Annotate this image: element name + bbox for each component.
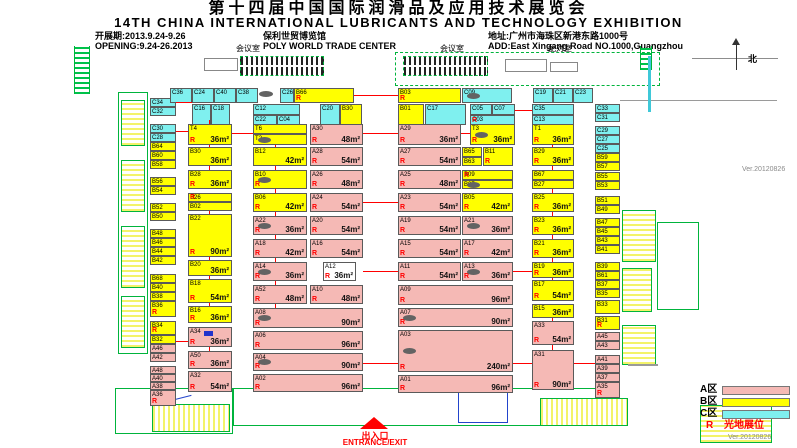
booth-id: B25 (534, 194, 545, 202)
booth-id: A06 (255, 332, 266, 340)
aisle-connector-line (515, 110, 532, 111)
booth-B30: B3036m² (188, 147, 232, 166)
booth-B29: B29R36m² (532, 147, 574, 166)
south-stair-left (152, 404, 230, 432)
exhibitor-logo-oval (403, 348, 416, 354)
booth-size: 36m² (491, 225, 510, 234)
booth-B61: B61 (595, 271, 620, 280)
booth-id: C19 (535, 89, 546, 97)
booth-size: 48m² (341, 179, 360, 188)
pairing-room-table-2 (550, 62, 578, 72)
booth-id: B56 (152, 178, 163, 186)
exhibitor-logo-oval (467, 223, 480, 229)
booth-B38: B38 (150, 292, 176, 301)
booth-A17: A17R42m² (462, 239, 513, 258)
meeting-room-label-1: 会议室 (236, 44, 260, 53)
booth-size: 54m² (552, 291, 571, 300)
legend-r-text: 光地展位 (724, 420, 764, 431)
booth-id: A12 (325, 263, 336, 271)
booth-id: C22 (255, 116, 266, 124)
aisle-connector-line (209, 303, 210, 306)
raw-space-marker: R (534, 250, 539, 258)
booth-size: 36m² (491, 271, 510, 280)
raw-space-marker: R (255, 384, 260, 392)
legend-zone-a-swatch (722, 386, 790, 395)
exhibitor-logo-blue (204, 331, 213, 336)
booth-id: C07 (494, 105, 505, 113)
booth-size: 36m² (552, 308, 571, 317)
booth-id: A16 (312, 240, 323, 248)
booth-B59: B59 (595, 153, 620, 162)
legend-r-label: R (706, 420, 713, 431)
booth-id: A32 (190, 372, 201, 380)
booth-B23: B23R36m² (532, 216, 574, 235)
raw-space-marker: R (400, 181, 405, 189)
booth-size: 54m² (439, 271, 458, 280)
booth-id: A01 (400, 376, 411, 384)
aisle-connector-line (513, 271, 532, 272)
aisle-connector-line (363, 363, 398, 364)
east-room-outline (657, 222, 699, 310)
booth-B15: B1536m² (532, 304, 574, 318)
booth-C29: C29 (595, 126, 620, 135)
booth-id: A33 (534, 322, 545, 330)
raw-space-marker: R (534, 227, 539, 235)
booth-A27: A27R54m² (398, 147, 461, 166)
booth-id: B22 (190, 215, 201, 223)
booth-B60: B60 (150, 151, 176, 160)
aisle-connector-line (176, 341, 188, 342)
booth-size: 48m² (341, 135, 360, 144)
booth-B42: B42 (150, 256, 176, 265)
booth-B51: B51 (595, 196, 620, 205)
raw-space-marker: R (312, 181, 317, 189)
raw-space-marker: R (400, 273, 405, 281)
booth-id: B12 (255, 148, 266, 156)
booth-size: 36m² (552, 135, 571, 144)
booth-B41: B41 (595, 245, 620, 254)
raw-space-marker: R (255, 250, 260, 258)
booth-id: A03 (400, 331, 411, 339)
booth-B36: B36R (150, 301, 176, 317)
booth-id: B50 (152, 213, 163, 221)
booth-id: A42 (152, 354, 163, 362)
booth-B09: B09R (462, 170, 513, 180)
booth-id: C40 (216, 89, 227, 97)
raw-space-marker: R (400, 250, 405, 258)
booth-A43: A43 (595, 341, 620, 350)
booth-id: B44 (152, 248, 163, 256)
booth-B32: B32 (150, 335, 176, 344)
booth-id: B58 (152, 161, 163, 169)
west-stair-1 (121, 100, 145, 146)
booth-id: B54 (152, 187, 163, 195)
raw-space-marker: R (190, 339, 195, 347)
legend-zone-c-label: C区 (700, 408, 717, 419)
aisle-connector-line (209, 347, 210, 351)
booth-C20: C20 (320, 104, 340, 125)
booth-B21: B21R36m² (532, 239, 574, 258)
raw-space-marker: R (597, 390, 602, 398)
raw-space-marker: R (312, 227, 317, 235)
booth-B40: B40 (150, 283, 176, 292)
booth-size: 54m² (439, 202, 458, 211)
aisle-connector-line (363, 271, 398, 272)
booth-size: 36m² (210, 266, 229, 275)
aisle-connector-line (461, 133, 470, 134)
booth-id: A41 (597, 356, 608, 364)
booth-B45: B45 (595, 227, 620, 236)
booth-size: 54m² (341, 202, 360, 211)
booth-size: 54m² (439, 156, 458, 165)
booth-size: 42m² (285, 248, 304, 257)
booth-size: 96m² (491, 295, 510, 304)
booth-A20: A20R54m² (310, 216, 363, 235)
raw-space-marker: R (312, 204, 317, 212)
raw-space-marker: R (400, 158, 405, 166)
booth-size: 36m² (493, 135, 512, 144)
booth-id: B65 (464, 148, 475, 156)
booth-size: 36m² (285, 271, 304, 280)
booth-id: B01 (400, 105, 411, 113)
aisle-connector-line (176, 131, 188, 132)
raw-space-marker: R (190, 194, 195, 202)
east-stair-2 (622, 268, 652, 312)
booth-size: 42m² (285, 156, 304, 165)
booth-A33: A33R54m² (532, 321, 574, 345)
booth-id: B67 (534, 171, 545, 179)
compass-needle (736, 44, 737, 70)
booth-size: 36m² (552, 248, 571, 257)
east-wall-line (620, 100, 777, 101)
booth-id: C30 (152, 125, 163, 133)
aisle-connector-line (354, 95, 398, 96)
booth-id: A28 (312, 148, 323, 156)
booth-size: 96m² (341, 382, 360, 391)
booth-id: C38 (238, 89, 249, 97)
booth-A04: A04R90m² (253, 353, 363, 371)
raw-space-marker: R (534, 158, 539, 166)
booth-A28: A28R54m² (310, 147, 363, 166)
east-stair-1 (622, 210, 656, 262)
entrance-label-en: ENTRANCE/EXIT (330, 438, 420, 447)
booth-B30: B30 (340, 104, 362, 125)
booth-id: A23 (400, 194, 411, 202)
booth-A32: A32R54m² (188, 371, 232, 392)
booth-size: 36m² (285, 225, 304, 234)
booth-B31: B31R (595, 316, 620, 330)
legend-zone-c-swatch (722, 410, 790, 419)
booth-A13: A13R36m² (462, 262, 513, 281)
booth-C07: C07 (492, 104, 515, 115)
raw-space-marker: R (312, 158, 317, 166)
booth-id: A46 (152, 345, 163, 353)
booth-id: C35 (534, 105, 545, 113)
raw-space-marker: R (296, 95, 301, 103)
meeting-room-2-seating (403, 56, 488, 76)
aisle-connector-line (275, 304, 276, 308)
raw-space-marker: R (534, 204, 539, 212)
booth-id: B52 (152, 204, 163, 212)
booth-id: B11 (485, 148, 495, 156)
booth-id: B55 (597, 173, 608, 181)
booth-id: C23 (575, 89, 586, 97)
booth-size: 42m² (491, 202, 510, 211)
booth-id: B53 (597, 182, 608, 190)
raw-space-marker: R (190, 181, 195, 189)
booth-size: 54m² (210, 382, 229, 391)
booth-C38: C38 (236, 88, 258, 103)
booth-B11: B11R (483, 147, 513, 166)
raw-space-marker: R (400, 227, 405, 235)
booth-id: A24 (312, 194, 323, 202)
booth-B39: B39 (595, 262, 620, 271)
booth-id: B17 (534, 281, 545, 289)
booth-id: A25 (400, 171, 411, 179)
raw-space-marker: R (152, 398, 157, 406)
booth-size: 96m² (341, 340, 360, 349)
booth-size: 36m² (210, 359, 229, 368)
floor-plan: 会议室 会议室 配对室 北 (0, 0, 797, 448)
booth-id: C12 (255, 105, 266, 113)
raw-space-marker: R (534, 137, 539, 145)
raw-space-marker: R (534, 337, 539, 345)
booth-B37: B37 (595, 280, 620, 289)
booth-id: B46 (152, 239, 163, 247)
booth-A10: A10R48m² (310, 285, 363, 304)
booth-id: C18 (213, 105, 224, 113)
booth-B10: B10R (253, 170, 307, 189)
booth-size: 96m² (491, 383, 510, 392)
booth-id: B39 (597, 263, 608, 271)
booth-C12: C12 (253, 104, 300, 115)
aisle-connector-line (209, 211, 210, 214)
booth-id: B61 (597, 272, 608, 280)
booth-size: 54m² (341, 248, 360, 257)
booth-size: 36m² (552, 202, 571, 211)
booth-id: B47 (597, 219, 608, 227)
booth-id: C04 (279, 116, 290, 124)
east-elevator-shaft (648, 56, 651, 112)
booth-C19: C19 (533, 88, 553, 103)
booth-A12: A12R36m² (323, 262, 356, 281)
booth-A01: A01R96m² (398, 375, 513, 393)
booth-T3: T3R36m² (470, 124, 515, 145)
booth-size: 36m² (210, 156, 229, 165)
booth-A16: A16R54m² (310, 239, 363, 258)
booth-B28: B28R36m² (188, 170, 232, 189)
booth-id: B06 (255, 194, 266, 202)
booth-C05: C05 (470, 104, 492, 115)
raw-space-marker: R (255, 320, 260, 328)
booth-A11: A11R54m² (398, 262, 461, 281)
booth-A23: A23R54m² (398, 193, 461, 212)
booth-B46: B46 (150, 238, 176, 247)
exhibitor-logo-oval (258, 269, 271, 275)
booth-B16: B16R36m² (188, 306, 232, 323)
booth-A21: A2136m² (462, 216, 513, 235)
booth-id: C24 (194, 89, 205, 97)
booth-id: B43 (597, 237, 608, 245)
booth-A15: A15R54m² (398, 239, 461, 258)
aisle-connector-line (275, 235, 276, 239)
booth-B01: B01 (398, 104, 424, 125)
booth-B33: B33 (595, 300, 620, 314)
raw-space-marker: R (152, 309, 157, 317)
north-label: 北 (748, 52, 757, 65)
booth-A34: A34R36m² (188, 327, 232, 347)
booth-size: 54m² (210, 293, 229, 302)
booth-A22: A22R36m² (253, 216, 307, 235)
aisle-connector-line (209, 120, 210, 124)
booth-id: C13 (534, 116, 545, 124)
booth-size: 240m² (487, 362, 510, 371)
booth-A37: A37 (595, 373, 620, 382)
booth-C24: C24 (192, 88, 214, 103)
exhibitor-logo-oval (258, 223, 271, 229)
raw-space-marker: R (464, 250, 469, 258)
booth-id: A39 (597, 365, 608, 373)
south-stair-right (540, 398, 628, 426)
booth-id: A02 (255, 375, 266, 383)
aisle-connector-line (552, 278, 553, 280)
aisle-connector-line (552, 318, 553, 321)
booth-T4: T4R36m² (188, 124, 232, 145)
booth-B43: B43 (595, 236, 620, 245)
booth-C09: C09 (462, 88, 512, 103)
booth-id: B59 (597, 154, 608, 162)
booth-T1: T1R36m² (532, 124, 574, 145)
booth-id: A34 (190, 328, 201, 336)
booth-B65: B65 (462, 147, 482, 157)
booth-C31: C31 (595, 113, 620, 122)
booth-A19: A19R54m² (398, 216, 461, 235)
raw-space-marker: R (312, 296, 317, 304)
exhibitor-logo-oval (467, 269, 480, 275)
booth-id: C27 (597, 136, 608, 144)
booth-id: A37 (597, 374, 608, 382)
booth-size: 90m² (341, 361, 360, 370)
booth-B58: B58 (150, 160, 176, 169)
booth-A24: A24R54m² (310, 193, 363, 212)
booth-A06: A06R96m² (253, 331, 363, 350)
west-stair-2 (121, 160, 145, 212)
booth-B53: B53 (595, 181, 620, 190)
booth-id: A29 (400, 125, 411, 133)
booth-A40: A40 (150, 374, 176, 382)
booth-A36: A36R (150, 390, 176, 406)
booth-T6: T6 (253, 124, 307, 134)
raw-space-marker: R (255, 204, 260, 212)
east-door-marker (628, 364, 658, 366)
version-label-bottom: Ver.20120826 (728, 434, 771, 442)
booth-size: 48m² (341, 294, 360, 303)
booth-id: B27 (534, 181, 545, 189)
booth-B66: B66R (294, 88, 354, 103)
booth-B34: B34R (150, 321, 176, 335)
booth-id: C36 (172, 89, 183, 97)
booth-A38: A38 (150, 382, 176, 390)
booth-C30: C30 (150, 124, 176, 133)
exhibitor-logo-oval (258, 137, 271, 143)
booth-id: A09 (400, 286, 411, 294)
booth-C23: C23 (573, 88, 593, 103)
legend-zone-b-swatch (722, 398, 790, 407)
booth-id: C28 (152, 134, 163, 142)
aisle-connector-line (363, 133, 398, 134)
booth-C36: C36 (170, 88, 192, 103)
booth-id: B51 (597, 197, 608, 205)
version-label-side: Ver.20120826 (742, 166, 785, 174)
booth-id: B33 (597, 301, 608, 309)
booth-C35: C35 (532, 104, 574, 115)
floor-plan-page: 第十四届中国国际润滑品及应用技术展览会 14TH CHINA INTERNATI… (0, 0, 797, 448)
raw-space-marker: R (400, 95, 405, 103)
booth-B57: B57 (595, 162, 620, 171)
booth-A07: A07R90m² (398, 308, 513, 327)
booth-id: B32 (152, 336, 163, 344)
south-blue-room (458, 390, 508, 423)
aisle-connector-line (209, 276, 210, 279)
booth-size: 90m² (210, 247, 229, 256)
booth-A48: A48 (150, 366, 176, 374)
exhibitor-logo-oval (258, 315, 271, 321)
booth-id: B45 (597, 228, 608, 236)
booth-B27: B27 (532, 180, 574, 189)
raw-space-marker: R (152, 327, 157, 335)
booth-size: 36m² (552, 268, 571, 277)
booth-A50: A50R36m² (188, 351, 232, 369)
booth-C32: C32 (150, 107, 176, 116)
booth-B67: B67 (532, 170, 574, 180)
booth-id: C21 (555, 89, 566, 97)
booth-id: A18 (255, 240, 266, 248)
booth-id: B30 (342, 105, 353, 113)
compass-arrow-icon (732, 38, 740, 45)
raw-space-marker: R (255, 342, 260, 350)
raw-space-marker: R (190, 384, 195, 392)
raw-space-marker: R (190, 249, 195, 257)
booth-B47: B47 (595, 218, 620, 227)
aisle-connector-line (275, 145, 276, 147)
booth-A45: A45 (595, 332, 620, 341)
booth-size: 90m² (491, 317, 510, 326)
exhibitor-logo-oval (258, 177, 271, 183)
booth-size: 36m² (210, 179, 229, 188)
booth-B44: B44 (150, 247, 176, 256)
booth-id: B05 (464, 194, 475, 202)
booth-B26: B26R (188, 193, 232, 202)
booth-id: C34 (152, 99, 163, 107)
booth-id: B60 (152, 152, 163, 160)
booth-B05: B05R42m² (462, 193, 513, 212)
exhibitor-logo-oval (467, 93, 480, 99)
booth-id: B35 (597, 290, 608, 298)
booth-id: A45 (597, 333, 608, 341)
booth-C40: C40 (214, 88, 236, 103)
booth-id: B41 (597, 246, 608, 254)
booth-id: A30 (312, 125, 323, 133)
aisle-connector-line (232, 133, 253, 134)
booth-B64: B64 (150, 142, 176, 151)
booth-B19: B19R36m² (532, 262, 574, 278)
aisle-connector-line (552, 345, 553, 350)
raw-space-marker: R (400, 297, 405, 305)
booth-id: C32 (152, 108, 163, 116)
booth-id: B57 (597, 163, 608, 171)
raw-space-marker: R (400, 137, 405, 145)
booth-size: 36m² (210, 135, 229, 144)
